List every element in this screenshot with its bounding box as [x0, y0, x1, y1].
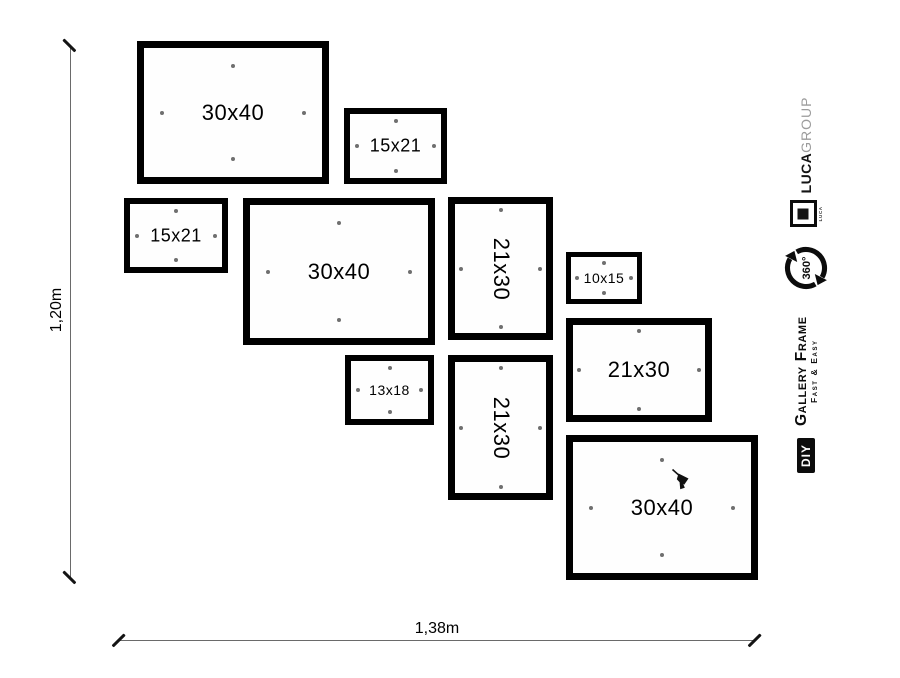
hanging-point-dot [394, 119, 398, 123]
hanging-point-dot [459, 267, 463, 271]
rotation-degrees-label: 360° [801, 257, 813, 280]
hanging-point-dot [355, 144, 359, 148]
branding-sidebar: DIY Gallery Frame Fast & Easy 360° LUCA … [780, 117, 832, 473]
frame-size-label: 21x30 [488, 237, 514, 299]
hanging-point-dot [602, 291, 606, 295]
frame-size-label: 13x18 [369, 382, 410, 398]
hanging-point-dot [459, 426, 463, 430]
frame-21x30-portrait: 21x30 [448, 197, 553, 340]
product-tagline: Fast & Easy [810, 316, 819, 426]
frame-21x30-portrait: 21x30 [448, 355, 553, 500]
hanging-point-dot [660, 553, 664, 557]
hanging-point-dot [135, 234, 139, 238]
hanging-point-dot [499, 208, 503, 212]
hanging-point-dot [499, 325, 503, 329]
frame-13x18: 13x18 [345, 355, 434, 425]
frame-21x30: 21x30 [566, 318, 712, 422]
hanging-point-dot [538, 426, 542, 430]
hanging-point-dot [174, 258, 178, 262]
brand-name-bold: LUCA [798, 153, 814, 193]
width-dimension-line [119, 640, 755, 641]
width-dimension-label: 1,38m [405, 620, 469, 638]
frame-30x40: 30x40 [137, 41, 329, 184]
frame-size-label: 30x40 [631, 495, 693, 521]
brand-name-light: GROUP [798, 97, 814, 153]
drill-icon [671, 468, 695, 492]
hanging-point-dot [419, 388, 423, 392]
frame-15x21: 15x21 [344, 108, 447, 184]
frame-30x40: 30x40 [243, 198, 435, 345]
hanging-point-dot [388, 366, 392, 370]
hanging-point-dot [337, 221, 341, 225]
hanging-point-dot [388, 410, 392, 414]
hanging-point-dot [337, 318, 341, 322]
luca-logo: LUCA [790, 200, 823, 227]
height-dimension-label: 1,20m [48, 278, 66, 342]
hanging-point-dot [356, 388, 360, 392]
brand-name: LUCAGROUP [798, 97, 814, 194]
height-dimension-line [70, 45, 71, 577]
hanging-point-dot [637, 329, 641, 333]
hanging-point-dot [174, 209, 178, 213]
hanging-point-dot [731, 506, 735, 510]
hanging-point-dot [408, 270, 412, 274]
hanging-point-dot [577, 368, 581, 372]
hanging-point-dot [602, 261, 606, 265]
frame-size-label: 10x15 [584, 270, 625, 286]
frame-30x40: 30x40 [566, 435, 758, 580]
hanging-point-dot [575, 276, 579, 280]
frame-15x21: 15x21 [124, 198, 228, 273]
hanging-point-dot [160, 111, 164, 115]
hanging-point-dot [538, 267, 542, 271]
hanging-point-dot [213, 234, 217, 238]
hanging-point-dot [589, 506, 593, 510]
product-name-block: Gallery Frame Fast & Easy [793, 316, 819, 426]
hanging-point-dot [394, 169, 398, 173]
frame-size-label: 15x21 [150, 225, 202, 246]
hanging-point-dot [499, 366, 503, 370]
hanging-point-dot [697, 368, 701, 372]
product-name: Gallery Frame [793, 316, 810, 426]
diy-badge: DIY [797, 438, 815, 473]
hanging-point-dot [637, 407, 641, 411]
hanging-point-dot [432, 144, 436, 148]
hanging-point-dot [266, 270, 270, 274]
hanging-point-dot [660, 458, 664, 462]
frame-size-label: 21x30 [608, 357, 670, 383]
hanging-point-dot [231, 64, 235, 68]
gallery-wall-diagram: 30x4015x2115x2130x4021x3010x1521x3013x18… [0, 0, 900, 678]
hanging-point-dot [302, 111, 306, 115]
luca-logo-small-text: LUCA [818, 200, 823, 227]
360-rotation-icon: 360° [780, 242, 832, 294]
frame-size-label: 30x40 [308, 259, 370, 285]
frame-size-label: 21x30 [488, 396, 514, 458]
frame-10x15: 10x15 [566, 252, 642, 304]
frame-size-label: 30x40 [202, 100, 264, 126]
frame-size-label: 15x21 [370, 136, 422, 157]
luca-logo-square [790, 200, 817, 227]
luca-logo-inner-square [798, 208, 809, 219]
hanging-point-dot [499, 485, 503, 489]
hanging-point-dot [231, 157, 235, 161]
hanging-point-dot [629, 276, 633, 280]
